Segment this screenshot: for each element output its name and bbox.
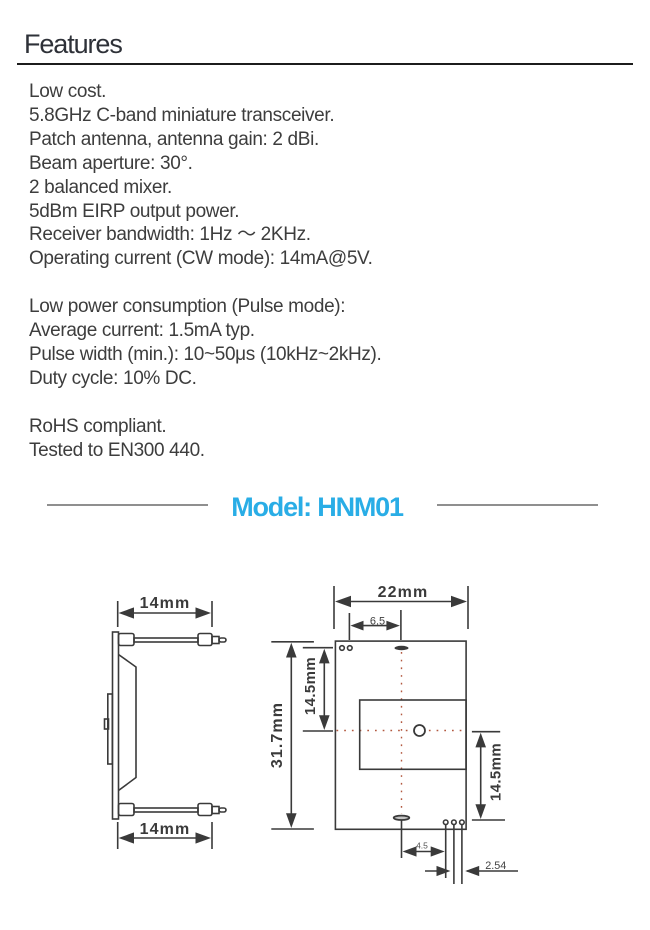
svg-text:31.7mm: 31.7mm (269, 702, 286, 768)
svg-text:14mm: 14mm (140, 595, 191, 612)
svg-text:14mm: 14mm (140, 821, 191, 838)
svg-text:2.54: 2.54 (485, 860, 506, 872)
svg-text:14.5mm: 14.5mm (302, 657, 319, 715)
svg-text:4.5: 4.5 (416, 841, 428, 851)
svg-text:14.5mm: 14.5mm (488, 743, 505, 801)
svg-text:22mm: 22mm (378, 584, 429, 601)
svg-text:6.5: 6.5 (370, 615, 385, 627)
